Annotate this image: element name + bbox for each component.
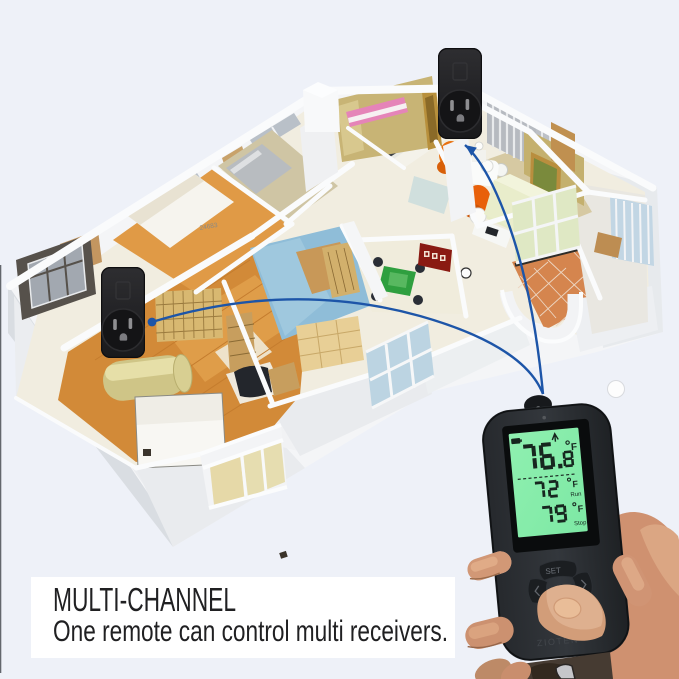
svg-text:Run: Run [570,492,582,499]
svg-text:F: F [571,442,578,454]
svg-text:Stop: Stop [574,520,588,527]
svg-text:One remote can control multi r: One remote can control multi receivers. [53,615,448,648]
svg-text:MULTI-CHANNEL: MULTI-CHANNEL [53,582,236,619]
svg-text:SET: SET [545,566,561,576]
